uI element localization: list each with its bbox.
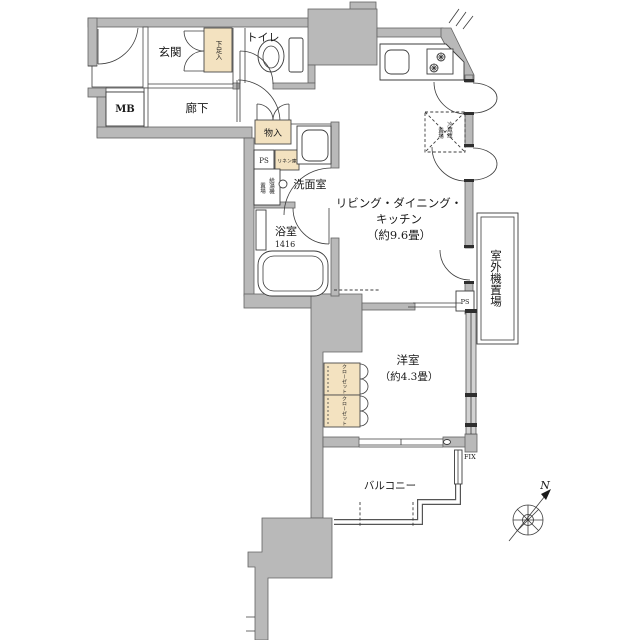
shoebox-label: 下足入 <box>214 40 222 60</box>
entrance-door-arc <box>98 28 138 64</box>
closet-upper-label: クローゼット <box>341 364 347 394</box>
western-bottom-window-lines <box>359 439 443 445</box>
genkan-label: 玄関 <box>159 45 182 59</box>
washroom-label: 洗面室 <box>294 177 327 191</box>
wall-washroom-right-a <box>331 122 339 168</box>
toilet-bowl-icon <box>258 40 284 72</box>
wall-top-right <box>377 28 443 37</box>
toilet-tank-icon <box>289 38 303 72</box>
western-room-label-1: 洋室 <box>397 353 420 367</box>
wall-corridor-bottom <box>97 127 252 138</box>
roof-hatch-lines <box>449 9 473 29</box>
genkan-step-line <box>148 84 233 88</box>
balcony-label: バルコニー <box>364 480 416 492</box>
wall-tick-marks <box>246 617 255 631</box>
wall-western-bottom-a <box>323 437 359 447</box>
wall-genkan-left <box>143 27 148 88</box>
linen-label: リネン庫 <box>277 158 296 165</box>
bath-door-arc <box>293 208 329 244</box>
ps-lower-label: PS <box>461 298 470 306</box>
bathroom <box>256 208 329 296</box>
corridor-label: 廊下 <box>186 101 209 115</box>
mb-label: MB <box>115 104 135 115</box>
fix-window-label: FIX <box>464 453 476 461</box>
shoe-cabinet-door-arcs <box>184 31 204 71</box>
compass-icon <box>509 489 551 541</box>
toilet-room <box>240 38 303 84</box>
storage-label: 物入 <box>264 127 282 139</box>
wall-right-seg2 <box>465 114 473 147</box>
western-room-label-2: （約4.3畳） <box>380 370 439 383</box>
ps-upper-label: PS <box>259 157 269 165</box>
wall-western-top <box>362 303 415 310</box>
toilet-partition-lines <box>233 28 245 84</box>
wall-column-left <box>244 138 254 296</box>
vanity-sink-icon <box>302 130 328 161</box>
ldk-label-1: リビング・ダイニング・ <box>336 196 463 210</box>
refrigerator-cross <box>425 112 465 152</box>
water-heater-label-1: 給湯機 <box>268 177 275 196</box>
water-heater-label-2: 置場 <box>259 182 266 195</box>
wall-left-stub <box>88 18 97 66</box>
closet-folding-doors <box>360 364 368 426</box>
window-lock-icon <box>444 440 451 445</box>
wall-right-seg3 <box>465 181 473 248</box>
wall-mb-top <box>106 88 144 92</box>
window2-outer-arc <box>473 148 497 180</box>
wall-corner-block <box>465 434 477 452</box>
floor-plan-drawing: MB 玄関 下足入 トイレ 廊下 物入 PS リネン庫 給湯機 置場 <box>0 0 640 640</box>
western-bottom-window <box>359 439 451 445</box>
wall-toilet-right <box>308 65 315 83</box>
wall-toilet-bottom-a <box>233 83 239 89</box>
window3-inner-arc <box>440 250 470 280</box>
wall-solid-block-bottom <box>248 518 332 640</box>
ldk-label-2: キッチン <box>376 212 422 226</box>
fridge-label-1: 冷蔵庫 <box>446 121 453 140</box>
floor-plan: MB 玄関 下足入 トイレ 廊下 物入 PS リネン庫 給湯機 置場 <box>0 0 640 640</box>
wall-toilet-bottom-b <box>273 83 315 89</box>
window1-outer-arc <box>473 83 497 113</box>
kitchen <box>380 44 465 152</box>
bath-counter <box>256 210 266 250</box>
wall-top-band <box>88 18 311 27</box>
kitchen-sink-icon <box>385 50 409 74</box>
window1-inner-arc <box>434 82 466 114</box>
water-heater-icon <box>279 180 287 188</box>
bathroom-label: 浴室 <box>275 224 297 238</box>
closet-lower-label: クローゼット <box>341 396 347 426</box>
compass-north-label: N <box>539 479 550 492</box>
porch-outline <box>88 66 143 87</box>
outdoor-unit-label: 室外機置場 <box>489 248 503 307</box>
ldk-label-3: （約9.6畳） <box>367 228 431 242</box>
wall-solid-block-top <box>308 9 377 65</box>
bathroom-size-label: 1416 <box>275 240 295 249</box>
toilet-label: トイレ <box>247 31 280 44</box>
storage-door-arcs <box>257 104 289 120</box>
wall-mb-stub <box>88 88 107 97</box>
wall-washroom-right-b <box>331 238 339 296</box>
refrigerator-space <box>425 112 465 152</box>
fridge-label-2: 置場 <box>437 127 444 140</box>
wall-corridor-left <box>144 88 148 127</box>
water-heater-box <box>254 169 280 205</box>
western-sliding-door <box>408 303 461 307</box>
